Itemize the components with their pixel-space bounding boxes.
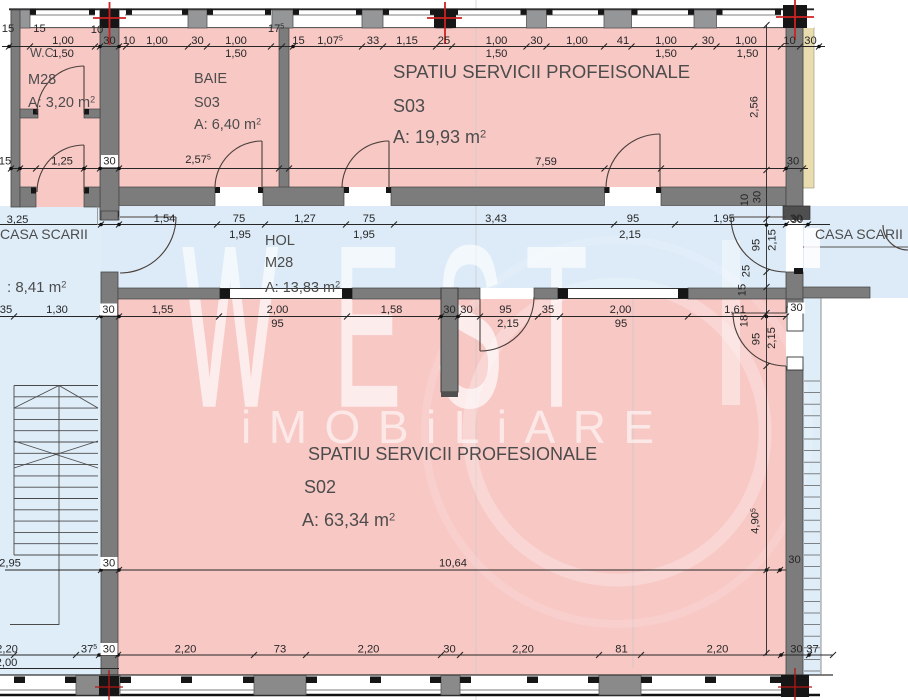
svg-text:1,95: 1,95 xyxy=(229,229,251,241)
svg-text:3,43: 3,43 xyxy=(485,213,507,225)
svg-text:41: 41 xyxy=(617,35,629,47)
svg-text:2,20: 2,20 xyxy=(707,644,729,656)
svg-text:S03: S03 xyxy=(194,95,220,111)
svg-text:2,20: 2,20 xyxy=(0,644,18,656)
svg-text:18: 18 xyxy=(739,315,751,327)
svg-text:95: 95 xyxy=(627,213,639,225)
svg-text:10: 10 xyxy=(783,35,795,47)
svg-text:75: 75 xyxy=(363,213,375,225)
svg-text:2,15: 2,15 xyxy=(497,318,519,330)
svg-text:1,50: 1,50 xyxy=(52,48,74,60)
svg-text:HOL: HOL xyxy=(265,233,295,249)
svg-text:30: 30 xyxy=(788,554,800,566)
svg-text:35: 35 xyxy=(0,304,12,316)
svg-text:A: 63,34 m2: A: 63,34 m2 xyxy=(302,510,395,530)
svg-text:S03: S03 xyxy=(393,96,425,116)
svg-text:30: 30 xyxy=(103,35,115,47)
svg-text:30: 30 xyxy=(804,35,816,47)
svg-text:2,15: 2,15 xyxy=(766,327,778,349)
svg-text:30: 30 xyxy=(790,644,802,656)
svg-text:35: 35 xyxy=(542,304,554,316)
svg-text:1,00: 1,00 xyxy=(566,35,588,47)
svg-text:2,00: 2,00 xyxy=(0,657,17,669)
svg-text:1,95: 1,95 xyxy=(713,213,735,225)
svg-text:1,25: 1,25 xyxy=(51,156,73,168)
svg-text:1,00: 1,00 xyxy=(486,35,508,47)
svg-text:30: 30 xyxy=(103,558,115,570)
svg-text:2,20: 2,20 xyxy=(358,644,380,656)
svg-text:95: 95 xyxy=(499,304,511,316)
svg-text:3,25: 3,25 xyxy=(7,214,29,226)
svg-text:1,50: 1,50 xyxy=(486,48,508,60)
svg-text:30: 30 xyxy=(752,191,764,203)
svg-text:M28: M28 xyxy=(265,255,293,271)
svg-text:25: 25 xyxy=(438,35,450,47)
svg-text:SPATIU SERVICII PROFESIONALE: SPATIU SERVICII PROFESIONALE xyxy=(308,444,597,464)
svg-text:CASA SCARII: CASA SCARII xyxy=(815,226,903,242)
svg-text:1,00: 1,00 xyxy=(655,35,677,47)
svg-text:30: 30 xyxy=(103,156,115,168)
svg-text:30: 30 xyxy=(702,35,714,47)
svg-text:: 8,41 m2: : 8,41 m2 xyxy=(7,279,66,296)
svg-text:2,15: 2,15 xyxy=(767,229,779,251)
svg-text:M28: M28 xyxy=(28,72,56,88)
svg-text:A: 6,40 m2: A: 6,40 m2 xyxy=(194,117,261,133)
svg-text:A: 13,83 m2: A: 13,83 m2 xyxy=(265,280,340,296)
svg-text:73: 73 xyxy=(274,644,286,656)
svg-text:15: 15 xyxy=(0,156,11,168)
svg-text:15: 15 xyxy=(2,23,14,35)
svg-text:75: 75 xyxy=(233,213,245,225)
svg-text:10: 10 xyxy=(739,194,751,206)
svg-text:30: 30 xyxy=(460,304,472,316)
svg-text:15: 15 xyxy=(33,23,45,35)
svg-text:33: 33 xyxy=(367,35,379,47)
svg-text:1,27: 1,27 xyxy=(294,213,316,225)
svg-text:15: 15 xyxy=(737,284,749,296)
svg-text:30: 30 xyxy=(103,644,115,656)
svg-text:95: 95 xyxy=(271,318,283,330)
svg-text:10: 10 xyxy=(123,35,135,47)
svg-text:30: 30 xyxy=(530,35,542,47)
svg-text:95: 95 xyxy=(751,239,763,251)
svg-text:30: 30 xyxy=(787,156,799,168)
svg-text:30: 30 xyxy=(790,302,802,314)
svg-text:30: 30 xyxy=(791,214,803,226)
svg-text:10: 10 xyxy=(91,24,103,36)
svg-text:BAIE: BAIE xyxy=(194,71,227,87)
svg-text:37: 37 xyxy=(806,644,818,656)
svg-text:30: 30 xyxy=(191,35,203,47)
svg-text:1,50: 1,50 xyxy=(737,48,759,60)
svg-text:1,00: 1,00 xyxy=(225,35,247,47)
svg-text:A: 3,20 m2: A: 3,20 m2 xyxy=(28,95,95,111)
svg-text:1,00: 1,00 xyxy=(735,35,757,47)
svg-text:95: 95 xyxy=(615,318,627,330)
svg-text:SPATIU SERVICII PROFEISONALE: SPATIU SERVICII PROFEISONALE xyxy=(393,61,690,82)
svg-text:1,30: 1,30 xyxy=(46,304,68,316)
svg-text:2,00: 2,00 xyxy=(610,304,632,316)
svg-text:1,50: 1,50 xyxy=(225,48,247,60)
svg-text:1,50: 1,50 xyxy=(655,48,677,60)
svg-text:2,20: 2,20 xyxy=(512,644,534,656)
svg-text:1,00: 1,00 xyxy=(52,35,74,47)
svg-text:25: 25 xyxy=(741,265,753,277)
svg-text:S02: S02 xyxy=(304,477,336,497)
svg-text:15: 15 xyxy=(292,35,304,47)
svg-text:CASA SCARII: CASA SCARII xyxy=(0,226,88,242)
svg-text:1,54: 1,54 xyxy=(154,213,176,225)
svg-text:10,64: 10,64 xyxy=(439,558,467,570)
svg-text:1,61: 1,61 xyxy=(724,304,746,316)
svg-text:A: 19,93 m2: A: 19,93 m2 xyxy=(393,127,486,147)
svg-text:30: 30 xyxy=(443,304,455,316)
svg-text:1,00: 1,00 xyxy=(146,35,168,47)
svg-text:2,15: 2,15 xyxy=(619,229,641,241)
svg-text:81: 81 xyxy=(615,644,627,656)
svg-text:W.C: W.C xyxy=(30,46,54,60)
svg-text:2,00: 2,00 xyxy=(267,304,289,316)
svg-text:30: 30 xyxy=(443,644,455,656)
svg-text:7,59: 7,59 xyxy=(535,156,557,168)
svg-text:1,55: 1,55 xyxy=(152,304,174,316)
svg-text:2,56: 2,56 xyxy=(749,96,761,118)
svg-text:1,15: 1,15 xyxy=(396,35,418,47)
svg-text:2,95: 2,95 xyxy=(0,558,21,570)
svg-text:1,95: 1,95 xyxy=(353,229,375,241)
svg-text:30: 30 xyxy=(102,304,114,316)
svg-text:95: 95 xyxy=(751,333,763,345)
svg-text:2,20: 2,20 xyxy=(175,644,197,656)
svg-text:1,58: 1,58 xyxy=(381,304,403,316)
